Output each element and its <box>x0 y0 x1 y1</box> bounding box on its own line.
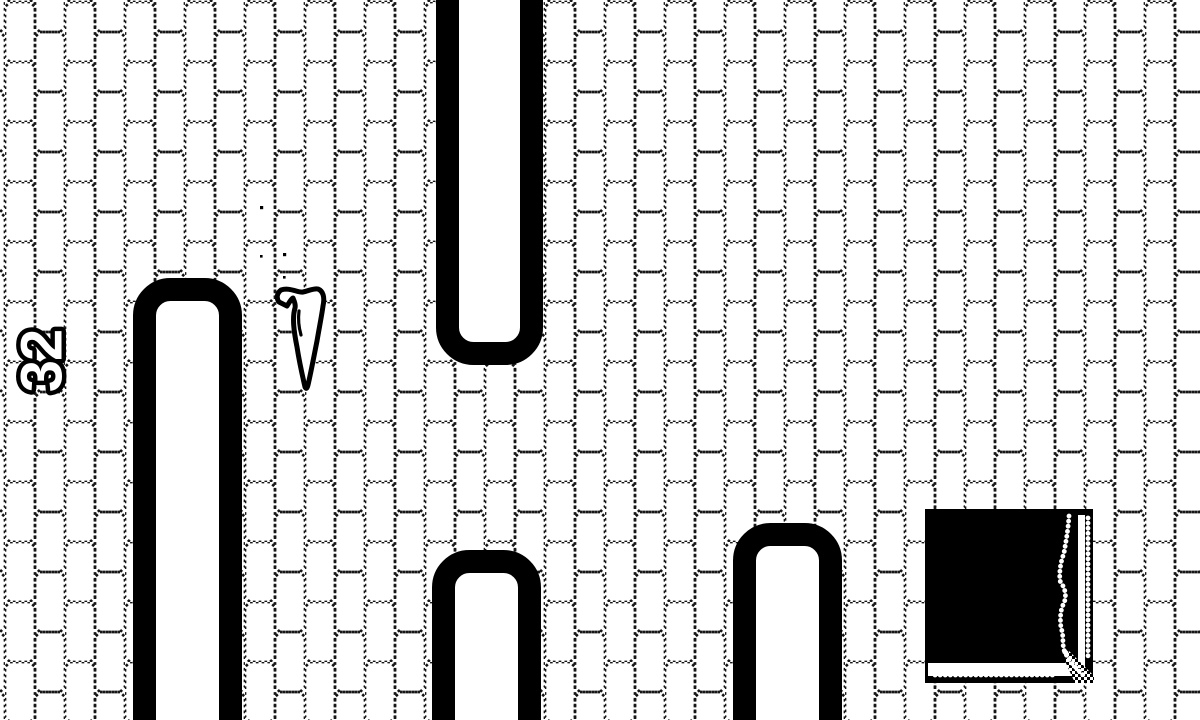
pillar-bottom-center <box>444 562 530 720</box>
page-card[interactable] <box>925 509 1094 683</box>
pillar-top <box>448 0 532 354</box>
pillar-left <box>145 290 231 720</box>
game-screen: 32 <box>0 0 1200 720</box>
card-page-edge-right <box>1078 515 1085 663</box>
score-label: 32 <box>10 330 75 393</box>
pillar-bottom-right <box>745 535 831 720</box>
